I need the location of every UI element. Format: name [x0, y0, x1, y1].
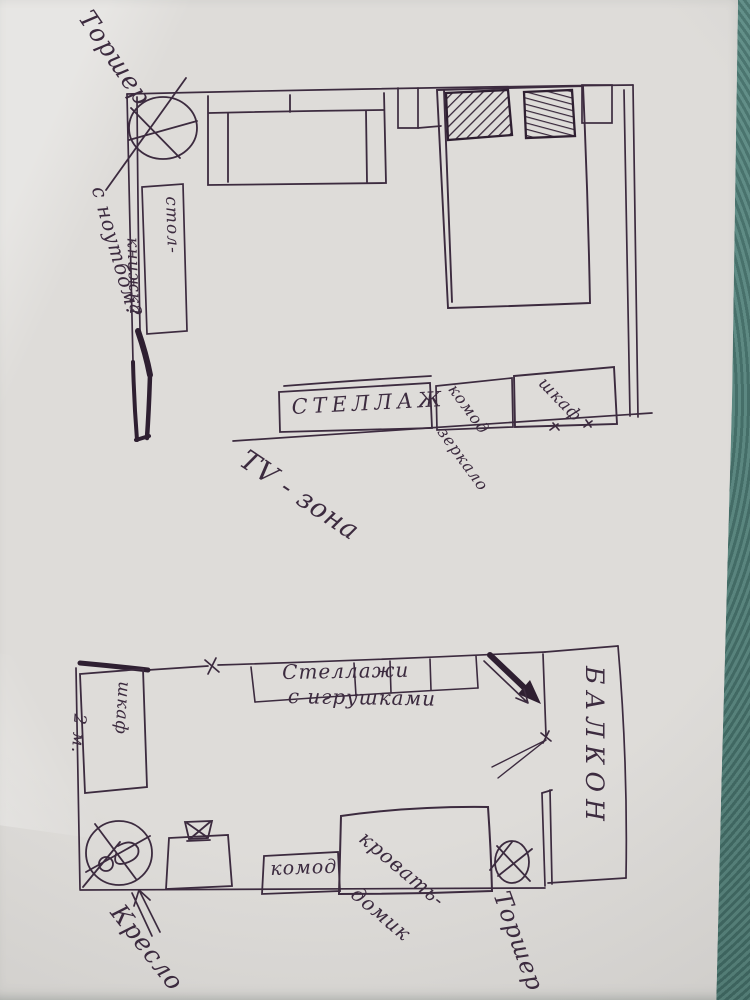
pillow-right	[524, 90, 575, 138]
balcony-door-arrow	[484, 655, 541, 704]
room1-door-bold-marks	[133, 331, 150, 440]
balcony-door-swing	[492, 740, 546, 778]
photo-of-floor-plan-sketch: Торшер с ноутбом? стол- книжка СТЕЛЛАЖ к…	[0, 0, 750, 1000]
label-balcony: БАЛКОН	[581, 666, 607, 828]
label-folding-table: стол- книжка	[121, 196, 186, 328]
armchair-shape	[83, 821, 152, 887]
label-wardrobe-2m: шкаф 2 м.	[66, 678, 134, 758]
label-toy-shelves-line1: Стеллажи	[282, 660, 409, 683]
label-dresser-bottom: комод	[270, 858, 338, 880]
nightstand-shape	[582, 85, 612, 123]
label-toy-shelves-line2: с игрушками	[288, 686, 437, 710]
sofa-shape	[208, 93, 386, 185]
floor-lamp2-icon	[490, 841, 532, 883]
desk-and-chair-shape	[166, 821, 232, 889]
pillow-left	[446, 90, 512, 140]
pillows	[446, 90, 575, 140]
room1-walls	[127, 85, 652, 441]
sofa-side-shelf	[398, 88, 441, 128]
